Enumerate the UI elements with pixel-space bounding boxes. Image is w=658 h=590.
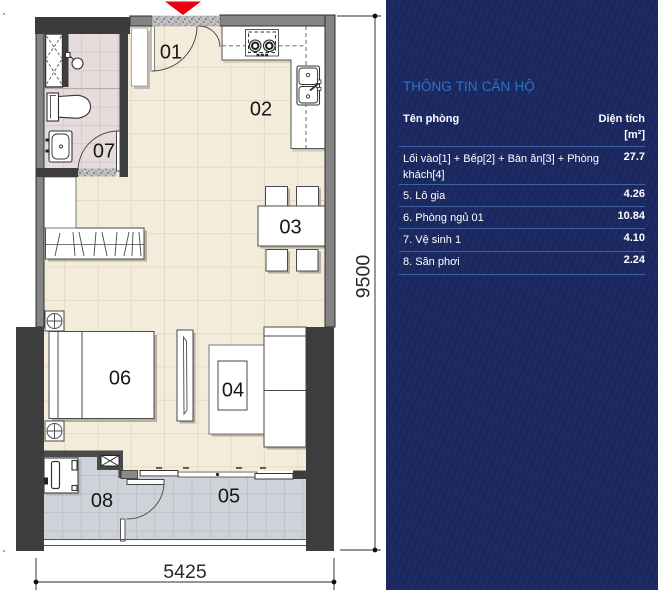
svg-text:04: 04 bbox=[222, 380, 244, 402]
svg-text:06: 06 bbox=[109, 368, 131, 390]
svg-text:07: 07 bbox=[93, 141, 115, 163]
svg-text:08: 08 bbox=[91, 490, 113, 512]
svg-text:01: 01 bbox=[160, 42, 182, 64]
svg-text:9500: 9500 bbox=[353, 255, 375, 299]
svg-text:05: 05 bbox=[218, 486, 240, 508]
svg-text:5425: 5425 bbox=[163, 561, 207, 583]
svg-text:02: 02 bbox=[250, 99, 272, 121]
svg-text:03: 03 bbox=[279, 217, 301, 239]
